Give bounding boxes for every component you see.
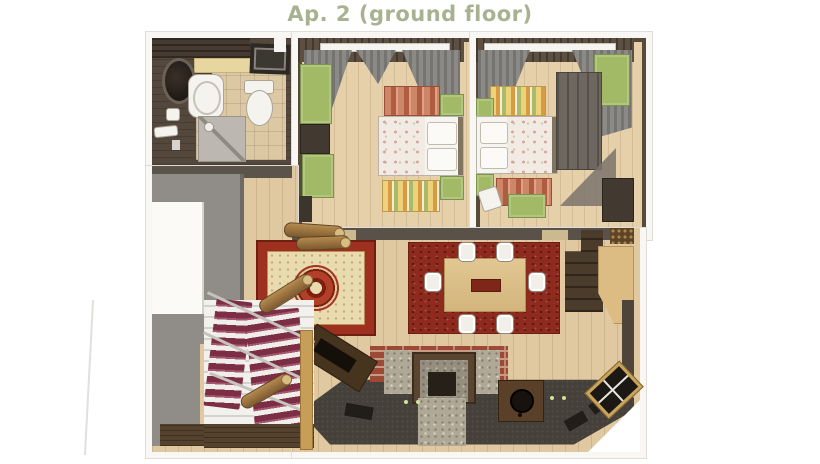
bath-mat	[153, 125, 178, 138]
dining-chair-6	[528, 272, 546, 292]
living-door-gap-2	[542, 230, 568, 240]
dining-chair-2	[496, 242, 514, 262]
corner-shelf-unit	[565, 230, 603, 312]
bedroom2-bed	[476, 116, 558, 174]
counter-knob-1	[404, 400, 408, 404]
bedroom2-wardrobe-gray	[556, 72, 602, 170]
bedroom1-door-opening	[298, 196, 312, 222]
dining-chair-5	[424, 272, 442, 292]
bedroom2-pillow-2	[480, 147, 508, 169]
counter-knob-4	[562, 396, 566, 400]
floor-plan-scene: Ap. 2 (ground floor)	[0, 0, 820, 464]
ground-shadow-left	[84, 300, 94, 455]
shelf-white	[274, 38, 286, 52]
fireplace	[412, 352, 476, 404]
room-bedroom-1	[292, 32, 482, 240]
bedroom1-headboard	[458, 117, 463, 175]
shower-drain	[204, 122, 214, 132]
bedroom2-pillow-1	[480, 122, 508, 144]
fireplace-opening	[428, 372, 456, 396]
counter-knob-2	[416, 400, 420, 404]
room-bedroom-2	[470, 32, 652, 240]
bathroom-slat-wall	[152, 38, 250, 58]
shower-tray	[198, 116, 246, 162]
dining-table	[444, 258, 526, 312]
bath-accessory	[172, 140, 180, 150]
stove-burner	[510, 389, 534, 413]
stair-handrail-wood	[300, 330, 313, 450]
bedroom1-bench-green	[302, 154, 334, 198]
wood-pile	[610, 228, 634, 244]
bathroom-counter-strip	[194, 58, 254, 73]
counter-knob-3	[550, 396, 554, 400]
stove-box	[498, 380, 544, 422]
sink-basin	[193, 81, 221, 115]
bedroom1-rug-red	[384, 86, 440, 116]
stair-landing	[204, 424, 314, 448]
stove-knob	[518, 413, 522, 417]
toilet-bowl	[246, 90, 273, 126]
bedroom1-nightstand-bottom	[440, 176, 464, 200]
staircase	[204, 300, 314, 448]
bedroom2-side-table-green	[508, 194, 546, 218]
dining-chair-3	[458, 314, 476, 334]
bedroom1-dark-cabinet	[300, 124, 330, 154]
bedroom2-bed-duvet	[507, 117, 553, 173]
dining-chair-1	[458, 242, 476, 262]
bedroom1-pillow-1	[427, 122, 457, 145]
hallway-entry-niche	[152, 202, 204, 314]
dining-chair-4	[496, 314, 514, 334]
sink	[188, 74, 224, 118]
page-title: Ap. 2 (ground floor)	[0, 2, 820, 26]
bedroom1-pillow-2	[427, 148, 457, 171]
stone-hearth	[418, 398, 466, 446]
table-centerpiece	[471, 279, 501, 292]
bedroom1-curtain-mid	[356, 50, 396, 84]
stone-pillar-right	[472, 350, 500, 394]
bedroom2-dark-cabinet	[602, 178, 634, 222]
bedroom1-wardrobe-green	[300, 64, 332, 124]
bedroom1-bed	[378, 116, 464, 176]
room-bathroom	[146, 32, 304, 178]
bedroom1-rug-yellow	[382, 180, 440, 212]
bedroom1-bed-duvet	[379, 117, 425, 175]
firewood-log-2	[296, 235, 350, 251]
bedroom1-nightstand-top	[440, 94, 464, 116]
bedroom2-rug-yellow	[490, 86, 546, 116]
toilet-paper	[166, 108, 180, 121]
stone-pillar-left	[384, 350, 412, 394]
